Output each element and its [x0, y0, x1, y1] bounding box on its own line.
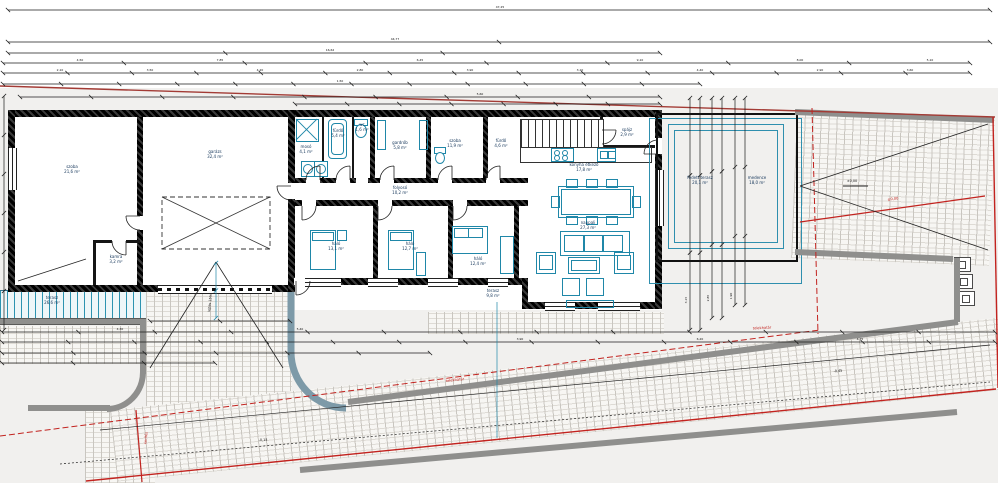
text-t-blk: lejtés 15% [207, 294, 213, 312]
room-label-halo-3: háló 12,4 m² [470, 257, 486, 267]
room-label-terasz: terasz 26,6 m² [44, 296, 60, 306]
room-label-furdo-2: fürdő 4,6 m² [494, 139, 507, 149]
text-t-dim: 6,20 [697, 337, 704, 341]
room-label-fedett-terasz: fedett terasz 20,1 m² [687, 176, 713, 186]
text-t-dim: 2,10 [57, 68, 64, 72]
text-t-dim: 5,10 [927, 58, 934, 62]
text-t-dim: 44,77 [391, 37, 400, 41]
text-t-dim: 4,50 [77, 58, 84, 62]
text-t-dim: 5,60 [477, 92, 484, 96]
text-t-dim: 4,75 [857, 337, 864, 341]
room-label-konyha: konyha étkező 17,8 m² [570, 163, 599, 173]
text-t-red: telekhatár [753, 326, 772, 331]
text-t-dim: 8,00 [797, 58, 804, 62]
room-label-spajz: spájz 2,9 m² [620, 128, 633, 138]
room-label-terasz-2: terasz 9,8 m² [486, 289, 499, 299]
text-t-blk: -0,15 [259, 438, 268, 442]
text-t-dim: 3,90 [467, 68, 474, 72]
floor-plan-canvas: szoba 21,6 m²garázs 32,4 m²kamra 3,2 m²m… [0, 0, 998, 483]
text-t-dim: 4,20 [257, 68, 264, 72]
text-t-blk: -0,45 [833, 369, 842, 374]
text-t-dim: 5,40 [297, 327, 304, 331]
room-label-nappali: nappali 27,3 m² [580, 221, 596, 231]
text-t-dim: 3,60 [907, 68, 914, 72]
text-t-dim: 7,85 [217, 58, 224, 62]
text-t-red: ±0,00 [887, 196, 898, 201]
text-t-dim: 4,30 [117, 327, 124, 331]
room-label-halo-2: háló 12,7 m² [402, 242, 418, 252]
text-t-dim: 3,15 [684, 297, 688, 304]
room-label-halo-1: háló 13,1 m² [328, 242, 344, 252]
room-label-medence: medence 18,0 m² [748, 176, 767, 186]
room-label-kamra: kamra 3,2 m² [109, 255, 122, 265]
text-t-dim: 3,50 [147, 68, 154, 72]
room-label-furdo-1: fürdő 5,4 m² [331, 129, 344, 139]
text-t-dim: 4,40 [697, 68, 704, 72]
room-label-moso: mosó 4,1 m² [299, 145, 312, 155]
room-label-wc: wc 1,6 m² [355, 123, 368, 133]
annotation-layer: szoba 21,6 m²garázs 32,4 m²kamra 3,2 m²m… [0, 0, 998, 483]
room-label-garazs: garázs 32,4 m² [207, 150, 223, 160]
text-t-dim: 16,62 [326, 48, 335, 52]
text-t-dim: 2,90 [817, 68, 824, 72]
room-label-gardrob: gardrób 5,8 m² [392, 141, 408, 151]
text-t-red: kerítés [143, 432, 148, 444]
room-label-szoba-2: szoba 11,9 m² [447, 139, 463, 149]
text-t-dim: 3,90 [517, 337, 524, 341]
text-t-dim: 1,50 [337, 79, 344, 83]
text-t-dim: 6,45 [417, 58, 424, 62]
text-t-dim: 3,10 [577, 68, 584, 72]
text-t-red: telekhatár [446, 377, 465, 383]
text-t-dim: 2,85 [706, 295, 710, 302]
text-t-dim: 2,80 [357, 68, 364, 72]
text-t-dim: 47,25 [496, 5, 505, 9]
text-t-dim: 1,90 [729, 293, 733, 300]
room-label-folyoso: folyosó 10,2 m² [392, 186, 408, 196]
text-t-blk: ±0,00 [847, 179, 857, 183]
room-label-szoba-1: szoba 21,6 m² [64, 165, 80, 175]
text-t-dim: 9,10 [637, 58, 644, 62]
